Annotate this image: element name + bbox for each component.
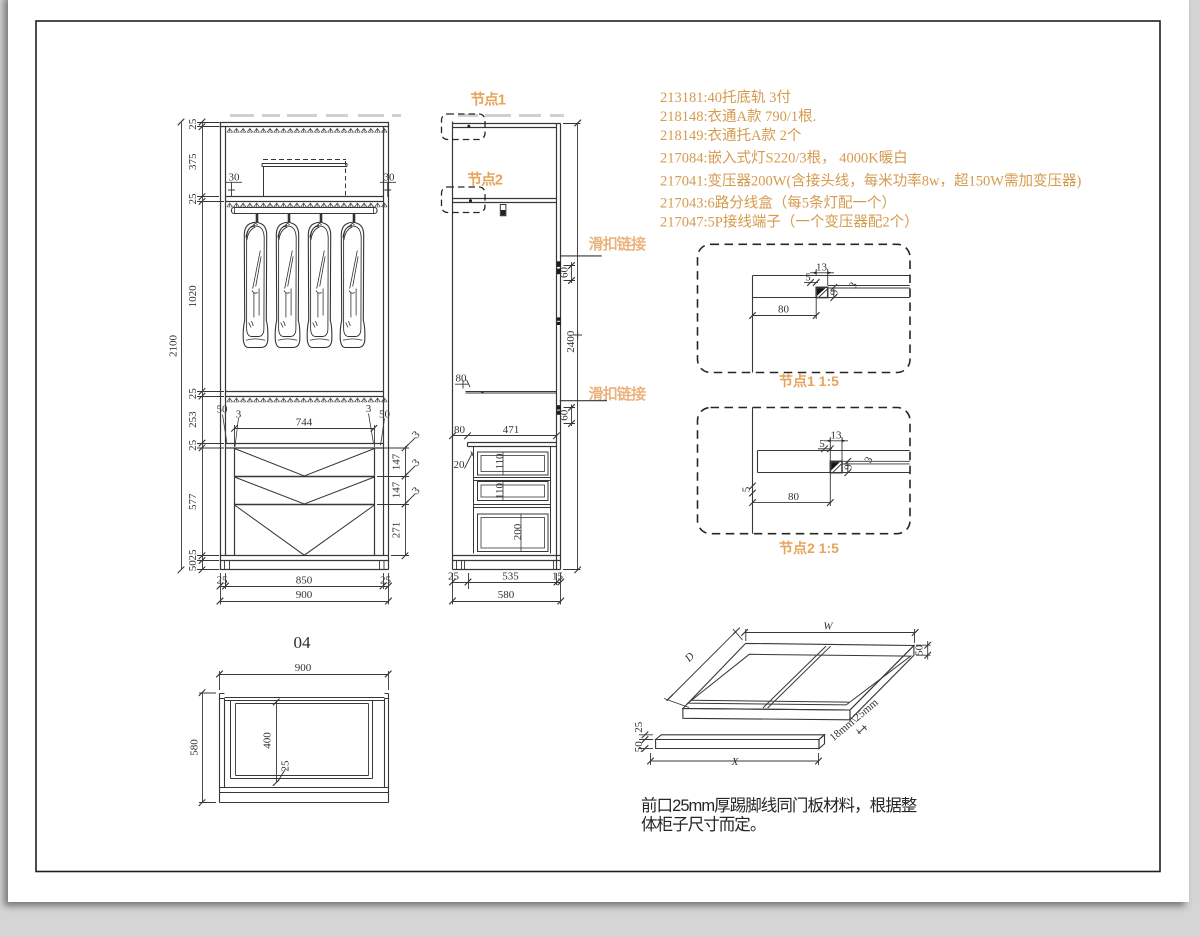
svg-text:5: 5 <box>741 486 753 492</box>
svg-text:80: 80 <box>788 491 800 503</box>
svg-text:前口25mm厚踢脚线同门板材料，根据整: 前口25mm厚踢脚线同门板材料，根据整 <box>641 796 917 815</box>
svg-text:25: 25 <box>217 575 229 587</box>
svg-text:217084:嵌入式灯S220/3根， 4000K暖白: 217084:嵌入式灯S220/3根， 4000K暖白 <box>660 150 908 167</box>
svg-text:50: 50 <box>187 560 199 572</box>
svg-text:110: 110 <box>494 482 506 499</box>
svg-text:535: 535 <box>502 571 519 583</box>
svg-text:213181:40托底轨 3付: 213181:40托底轨 3付 <box>660 89 791 106</box>
svg-text:3: 3 <box>410 429 423 441</box>
svg-text:滑扣链接: 滑扣链接 <box>589 385 647 403</box>
svg-text:147: 147 <box>391 481 403 498</box>
svg-text:217047:5P接线端子（一个变压器配2个）: 217047:5P接线端子（一个变压器配2个） <box>660 214 919 231</box>
svg-text:80: 80 <box>778 304 790 316</box>
svg-text:3: 3 <box>410 457 423 469</box>
svg-text:25: 25 <box>187 388 199 400</box>
svg-text:W: W <box>823 621 833 633</box>
svg-text:25: 25 <box>187 439 199 451</box>
svg-text:5: 5 <box>819 438 825 450</box>
svg-text:节点1: 节点1 <box>471 92 506 109</box>
svg-text:2400: 2400 <box>565 330 577 353</box>
svg-text:60: 60 <box>559 267 571 279</box>
svg-text:60: 60 <box>559 409 571 421</box>
svg-text:147: 147 <box>391 453 403 470</box>
svg-text:25: 25 <box>187 118 199 130</box>
svg-text:253: 253 <box>187 411 199 428</box>
svg-text:80: 80 <box>454 424 466 436</box>
svg-text:15: 15 <box>552 571 564 583</box>
svg-text:50: 50 <box>633 741 645 753</box>
svg-text:节点2 1:5: 节点2 1:5 <box>779 540 839 556</box>
svg-text:3: 3 <box>366 403 372 415</box>
svg-text:471: 471 <box>503 424 520 436</box>
svg-text:30: 30 <box>384 172 396 184</box>
svg-text:3: 3 <box>236 408 242 420</box>
svg-text:110: 110 <box>494 453 506 470</box>
svg-text:580: 580 <box>498 589 515 601</box>
svg-text:375: 375 <box>187 153 199 170</box>
svg-text:400: 400 <box>262 732 274 749</box>
svg-text:3: 3 <box>847 280 860 291</box>
svg-text:218148:衣通A款 790/1根.: 218148:衣通A款 790/1根. <box>660 108 816 125</box>
svg-text:80: 80 <box>456 373 468 385</box>
svg-text:13: 13 <box>831 429 843 441</box>
svg-text:50: 50 <box>379 408 391 420</box>
svg-text:25: 25 <box>187 549 199 561</box>
svg-text:20: 20 <box>454 459 466 471</box>
svg-text:271: 271 <box>391 522 403 539</box>
svg-text:25: 25 <box>380 575 392 587</box>
svg-text:3: 3 <box>410 485 423 497</box>
svg-text:30: 30 <box>229 172 241 184</box>
svg-text:X: X <box>731 756 740 768</box>
svg-text:744: 744 <box>296 417 313 429</box>
svg-text:850: 850 <box>296 575 313 587</box>
svg-text:200: 200 <box>512 523 524 540</box>
svg-text:节点2: 节点2 <box>468 172 503 189</box>
svg-text:1020: 1020 <box>187 285 199 308</box>
svg-text:25: 25 <box>187 193 199 205</box>
svg-text:577: 577 <box>187 493 199 510</box>
svg-text:2100: 2100 <box>168 335 180 358</box>
svg-text:9: 9 <box>829 289 841 295</box>
svg-text:580: 580 <box>189 739 201 756</box>
svg-text:体柜子尺寸而定。: 体柜子尺寸而定。 <box>641 815 765 834</box>
svg-text:9: 9 <box>843 464 855 470</box>
svg-text:25: 25 <box>448 571 460 583</box>
svg-text:5: 5 <box>805 272 811 284</box>
svg-text:D: D <box>682 650 697 665</box>
svg-text:50: 50 <box>914 644 926 656</box>
svg-text:218149:衣通托A款 2个: 218149:衣通托A款 2个 <box>660 127 802 144</box>
svg-text:900: 900 <box>295 662 312 674</box>
svg-text:217041:变压器200W(含接头线，每米功率8w，超15: 217041:变压器200W(含接头线，每米功率8w，超150W需加变压器) <box>660 173 1081 190</box>
svg-text:25: 25 <box>633 721 645 733</box>
svg-text:25: 25 <box>280 760 292 772</box>
svg-text:节点1 1:5: 节点1 1:5 <box>779 373 839 389</box>
svg-text:滑扣链接: 滑扣链接 <box>589 235 647 253</box>
svg-text:04: 04 <box>294 633 312 652</box>
svg-text:217043:6路分线盒（每5条灯配一个）: 217043:6路分线盒（每5条灯配一个） <box>660 195 896 212</box>
svg-text:13: 13 <box>816 261 828 273</box>
svg-text:50: 50 <box>217 404 229 416</box>
svg-text:900: 900 <box>296 589 313 601</box>
